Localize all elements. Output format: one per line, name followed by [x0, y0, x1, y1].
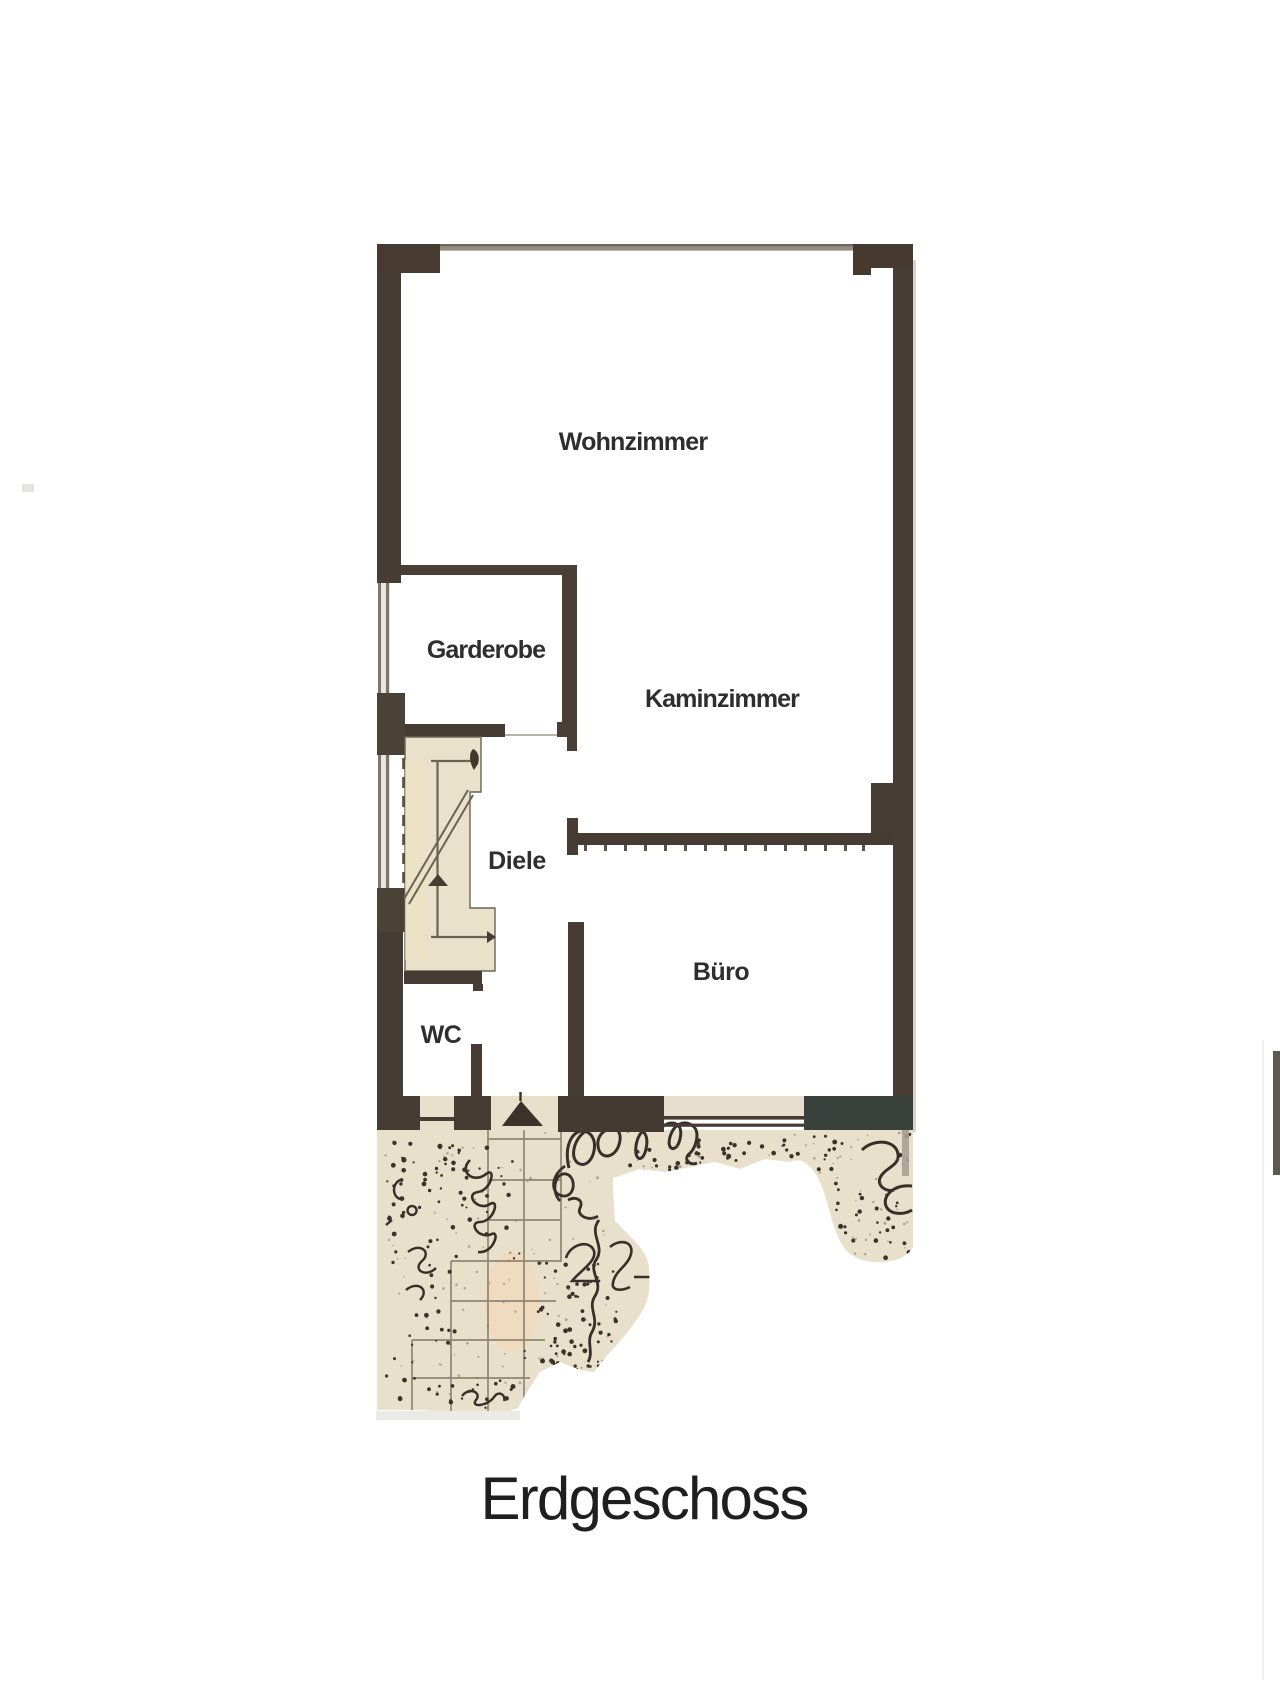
svg-text:Wohnzimmer: Wohnzimmer — [559, 428, 709, 456]
svg-text:WC: WC — [421, 1021, 462, 1049]
svg-text:Diele: Diele — [488, 847, 546, 875]
svg-text:Garderobe: Garderobe — [427, 636, 546, 664]
svg-text:Büro: Büro — [693, 958, 750, 986]
svg-text:Erdgeschoss: Erdgeschoss — [480, 1465, 807, 1532]
svg-text:Kaminzimmer: Kaminzimmer — [645, 685, 800, 713]
